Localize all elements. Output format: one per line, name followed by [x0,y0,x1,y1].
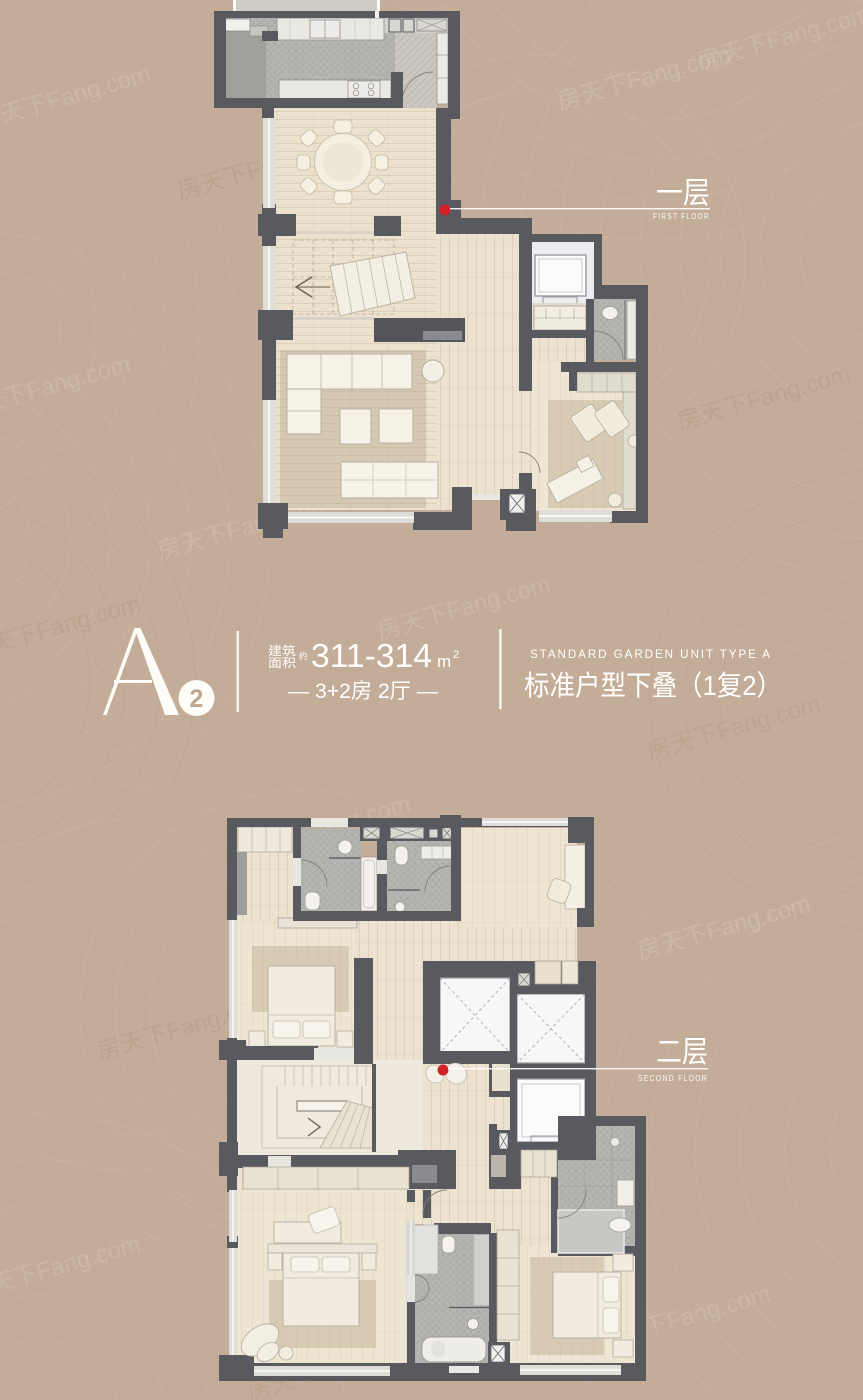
svg-text:FIRST FLOOR: FIRST FLOOR [653,212,710,221]
svg-text:— 3+2房 2厅 —: — 3+2房 2厅 — [288,680,438,703]
svg-text:面积: 面积 [268,656,296,670]
svg-text:SECOND FLOOR: SECOND FLOOR [638,1074,708,1083]
svg-text:一层: 一层 [656,177,710,210]
svg-text:STANDARD GARDEN UNIT TYPE A: STANDARD GARDEN UNIT TYPE A [530,647,772,661]
svg-text:311-314: 311-314 [311,637,432,674]
svg-text:约: 约 [299,651,308,661]
svg-text:二层: 二层 [656,1036,708,1069]
svg-text:2: 2 [190,685,204,713]
svg-text:m: m [437,652,451,671]
svg-text:标准户型下叠（1复2）: 标准户型下叠（1复2） [524,670,782,701]
svg-text:2: 2 [453,649,459,661]
